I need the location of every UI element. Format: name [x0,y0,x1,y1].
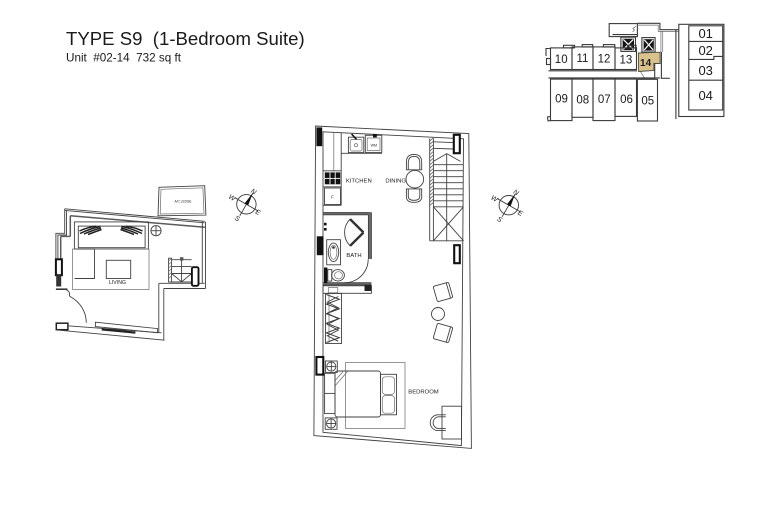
svg-text:14: 14 [640,58,652,69]
svg-text:02: 02 [698,43,712,58]
svg-text:10: 10 [555,54,568,66]
svg-text:12: 12 [598,53,611,65]
svg-text:09: 09 [555,94,568,106]
svg-text:DINING: DINING [385,178,406,184]
svg-text:07: 07 [598,94,611,106]
svg-text:TYPE S9 (1-Bedroom Suite): TYPE S9 (1-Bedroom Suite) [66,28,305,49]
svg-text:KITCHEN: KITCHEN [346,178,372,184]
svg-text:F: F [331,195,334,200]
svg-text:A/C LEDGE: A/C LEDGE [174,200,191,204]
svg-text:01: 01 [698,26,712,41]
svg-text:BATH: BATH [346,253,361,259]
svg-text:08: 08 [576,95,589,107]
svg-text:LIVING: LIVING [109,280,126,286]
svg-text:03: 03 [698,63,712,78]
svg-text:WM: WM [371,143,377,147]
svg-text:BEDROOM: BEDROOM [408,390,439,396]
svg-text:11: 11 [577,53,589,65]
svg-text:13: 13 [620,54,633,66]
svg-text:Unit #02-14 732 sq ft: Unit #02-14 732 sq ft [66,51,182,64]
svg-text:05: 05 [641,96,654,108]
svg-text:06: 06 [620,94,633,106]
svg-text:04: 04 [698,88,712,103]
